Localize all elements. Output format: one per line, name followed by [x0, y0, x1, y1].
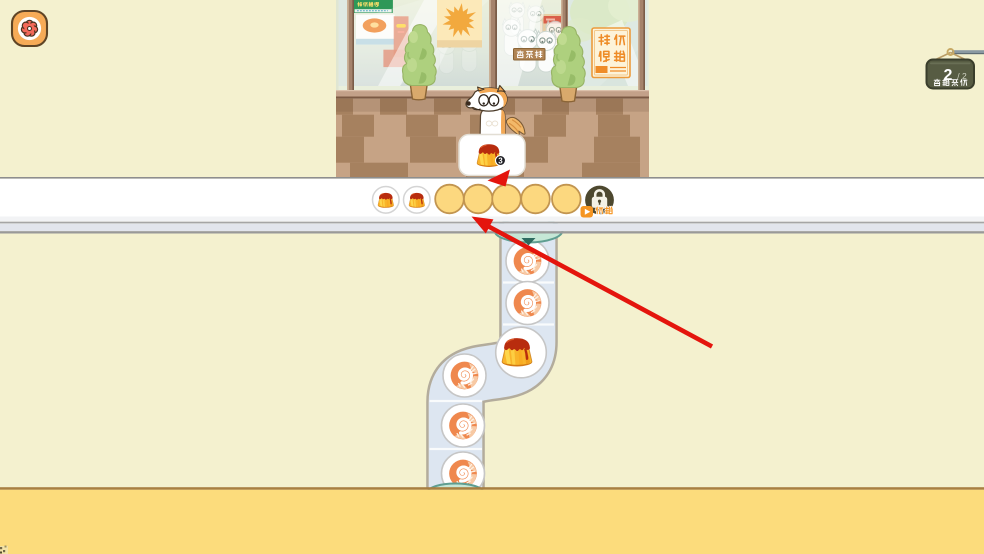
- svg-text:3: 3: [498, 156, 503, 165]
